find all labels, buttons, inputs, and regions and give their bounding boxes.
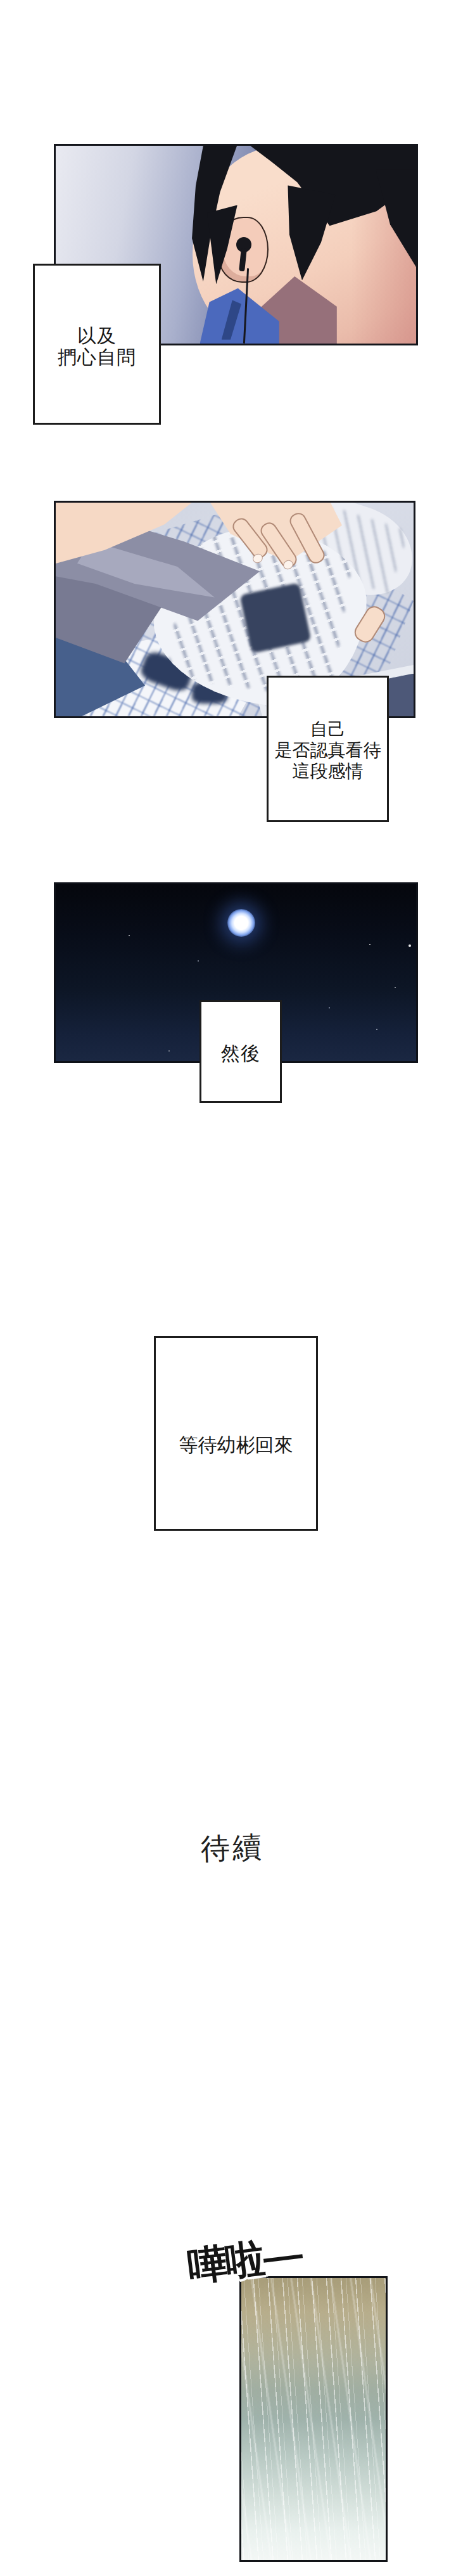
caption-box-3: 然後 — [199, 1000, 282, 1103]
caption-text: 等待幼彬回來 — [156, 1434, 316, 1456]
caption-line: 這段感情 — [269, 761, 387, 782]
caption-line: 然後 — [201, 1043, 280, 1064]
caption-text: 自己 是否認真看待 這段感情 — [269, 719, 387, 782]
caption-line: 捫心自問 — [35, 347, 159, 368]
blurred-image-block — [240, 583, 312, 654]
caption-line: 以及 — [35, 325, 159, 347]
rain-streaks-soft — [239, 2276, 388, 2562]
panel-rain — [239, 2276, 388, 2562]
caption-box-1: 以及 捫心自問 — [33, 264, 161, 425]
caption-line: 是否認真看待 — [269, 740, 387, 761]
stars — [56, 884, 57, 885]
caption-line: 等待幼彬回來 — [156, 1434, 316, 1456]
caption-text: 然後 — [201, 1043, 280, 1064]
caption-line: 自己 — [269, 719, 387, 740]
caption-box-4: 等待幼彬回來 — [154, 1336, 318, 1531]
caption-text: 以及 捫心自問 — [35, 325, 159, 368]
caption-box-2: 自己 是否認真看待 這段感情 — [267, 676, 389, 822]
to-be-continued-text: 待續 — [168, 1827, 296, 1869]
webtoon-page: 以及 捫心自問 自己 — [0, 0, 456, 2576]
